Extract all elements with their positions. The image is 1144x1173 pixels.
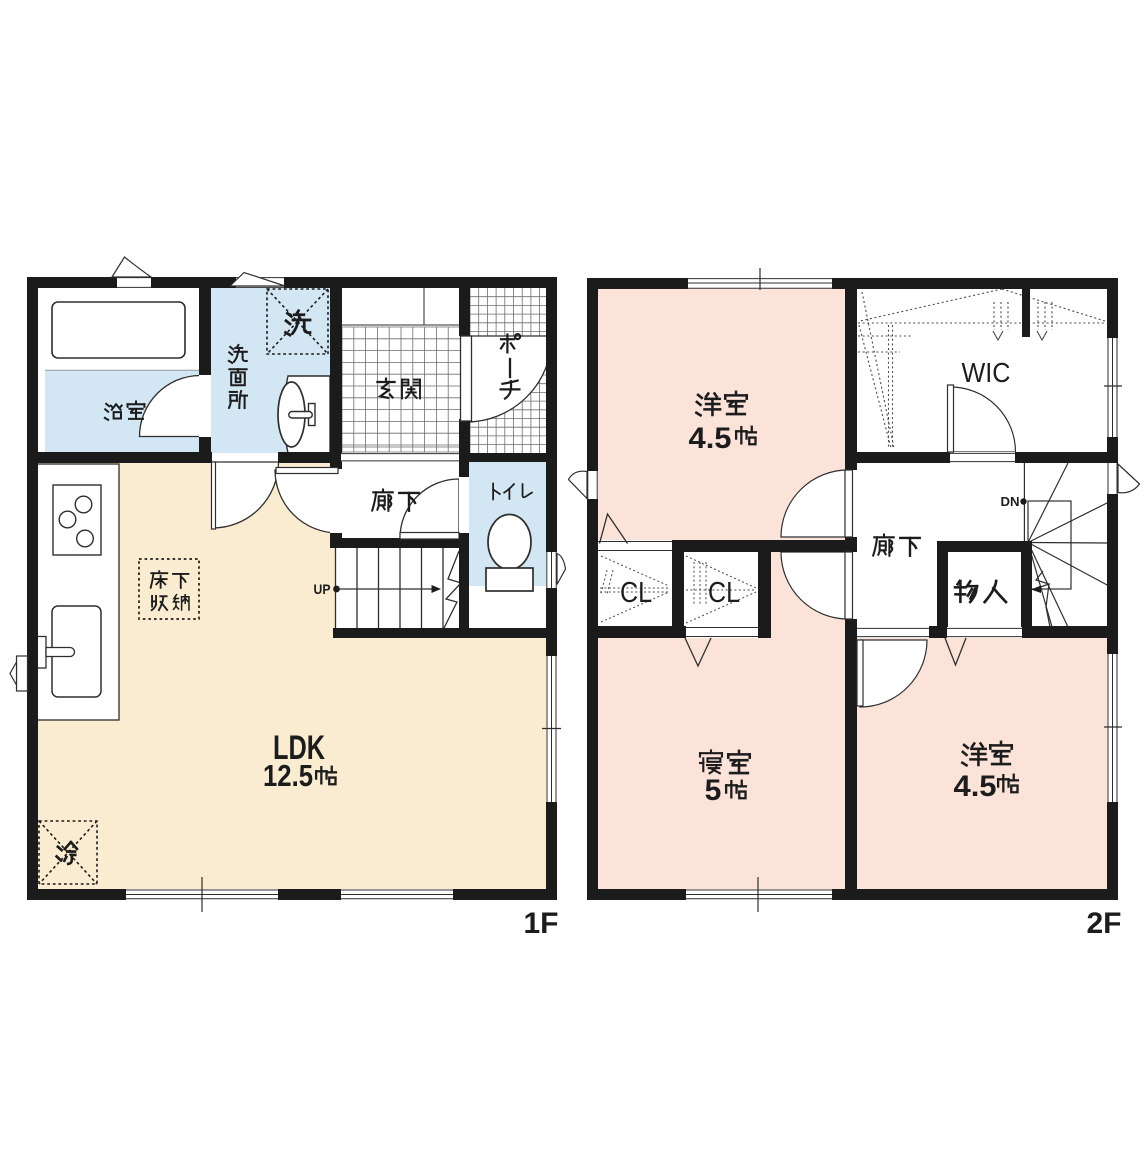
svg-text:WIC: WIC: [962, 357, 1011, 388]
svg-text:1F: 1F: [523, 907, 558, 940]
svg-text:2F: 2F: [1086, 907, 1121, 940]
svg-text:CL: CL: [620, 577, 652, 609]
svg-text:4.5: 4.5: [954, 770, 997, 803]
svg-text:12.5: 12.5: [263, 758, 313, 793]
svg-text:4.5: 4.5: [689, 422, 732, 455]
svg-text:UP: UP: [314, 581, 331, 597]
svg-text:5: 5: [705, 774, 722, 807]
svg-text:DN: DN: [1001, 494, 1020, 509]
svg-text:CL: CL: [708, 577, 740, 609]
